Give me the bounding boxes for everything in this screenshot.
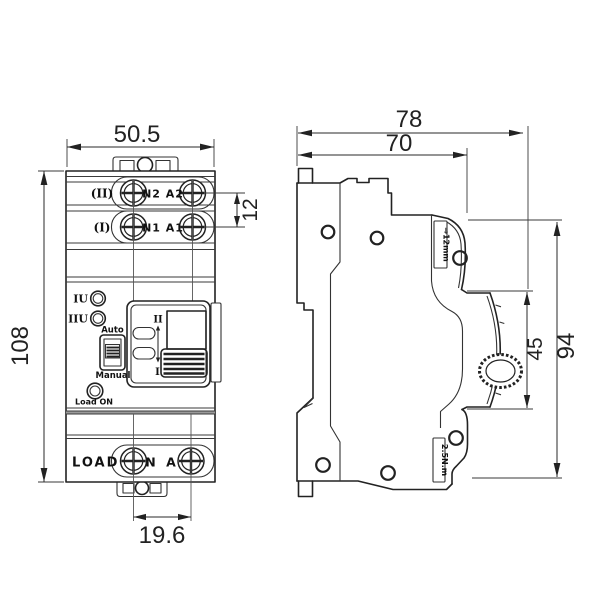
depth-total-dim-text: 78 <box>396 106 423 133</box>
height-dim-text: 108 <box>7 326 34 366</box>
position-lower-label: I <box>155 367 160 378</box>
depth-body-dim-text: 70 <box>386 130 413 157</box>
load-terminal-labels: N A <box>145 455 179 470</box>
position-upper-label: II <box>153 315 163 326</box>
technical-drawing-page: (II) N2 A2 (I) N1 A1 IU IIU Auto <box>0 0 600 600</box>
thumbwheel[interactable] <box>480 355 522 388</box>
strip-length-label: ⇒12mm <box>442 227 451 262</box>
source2-label: (II) <box>91 187 114 201</box>
led-source2-label: IIU <box>68 313 88 326</box>
front-height-dim-text: 94 <box>553 333 580 360</box>
width-dim-text: 50.5 <box>114 121 161 148</box>
source2-terminal-labels: N2 A2 <box>142 188 184 201</box>
load-on-label: Load ON <box>75 398 113 407</box>
housing-screw <box>322 226 335 239</box>
terminal-pitch-dim-text: 12 <box>239 198 262 221</box>
load-pitch-dim-text: 19.6 <box>139 522 186 549</box>
side-view: ⇒12mm 2.5N.m 78 70 94 <box>297 106 580 497</box>
load-label: LOAD <box>72 456 119 471</box>
mode-auto-label: Auto <box>101 326 124 336</box>
led-source1-label: IU <box>73 293 88 306</box>
side-body-outline <box>297 169 504 497</box>
front-view: (II) N2 A2 (I) N1 A1 IU IIU Auto <box>7 121 262 549</box>
changeover-switch-drawing: (II) N2 A2 (I) N1 A1 IU IIU Auto <box>0 0 600 600</box>
torque-plate: 2.5N.m <box>433 438 449 482</box>
side-lock-tab <box>211 303 221 382</box>
mode-manual-label: Manual <box>96 371 131 381</box>
side-dimensions: 78 70 94 45 <box>297 106 580 478</box>
source1-terminal-labels: N1 A1 <box>142 222 184 235</box>
housing-screw <box>381 466 395 480</box>
housing-screw <box>316 458 330 472</box>
torque-label: 2.5N.m <box>440 444 449 476</box>
housing-screw <box>371 232 384 245</box>
handle-zone-dim-text: 45 <box>524 337 547 360</box>
strip-length-plate: ⇒12mm <box>434 221 451 268</box>
top-din-clip <box>113 157 178 173</box>
switch-handle[interactable] <box>161 349 207 377</box>
housing-screw <box>449 431 463 445</box>
bottom-din-clip <box>117 482 167 497</box>
source1-label: (I) <box>94 221 111 235</box>
